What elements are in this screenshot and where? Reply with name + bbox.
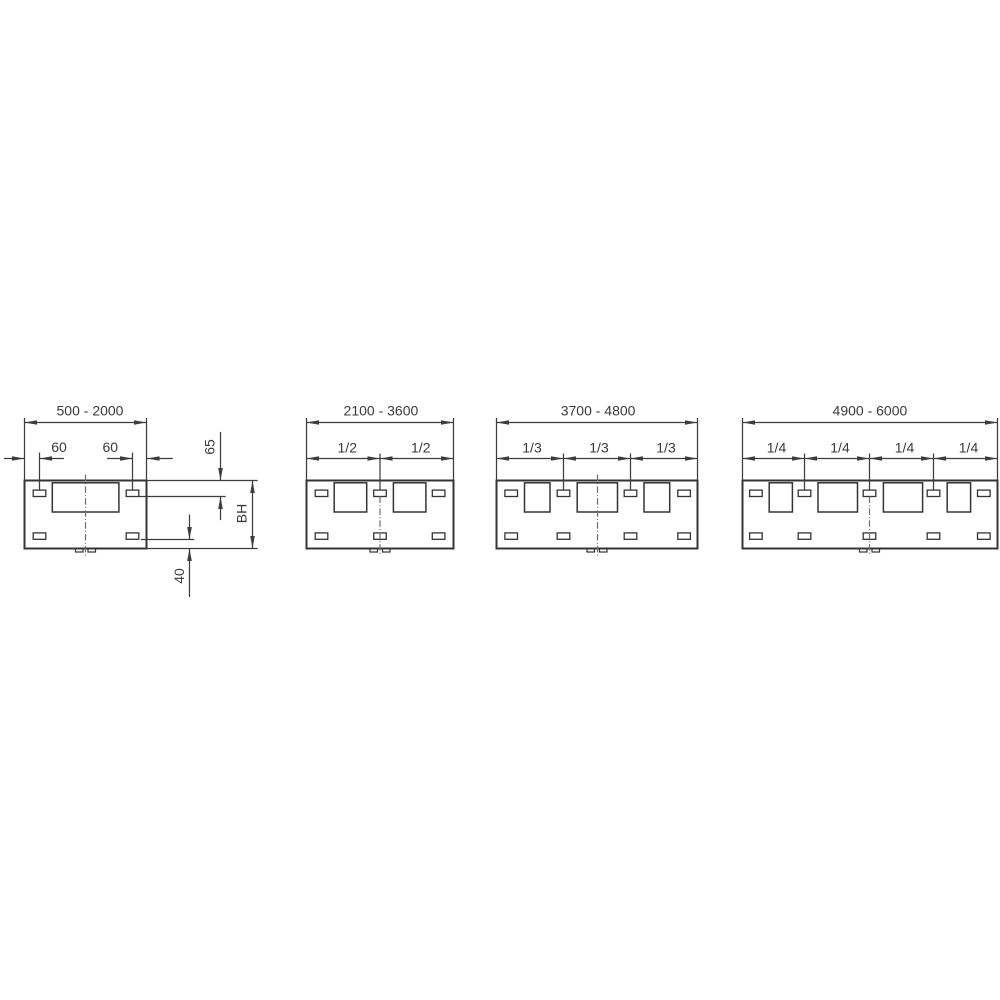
svg-text:1/4: 1/4: [830, 439, 850, 455]
svg-text:1/4: 1/4: [767, 439, 787, 455]
svg-text:1/3: 1/3: [522, 439, 542, 455]
svg-text:2100 - 3600: 2100 - 3600: [344, 403, 419, 419]
svg-text:60: 60: [103, 439, 119, 455]
svg-text:1/3: 1/3: [589, 439, 609, 455]
svg-text:1/2: 1/2: [338, 439, 358, 455]
svg-text:500 - 2000: 500 - 2000: [57, 403, 124, 419]
svg-text:1/4: 1/4: [895, 439, 915, 455]
svg-text:BH: BH: [233, 504, 249, 523]
svg-text:1/2: 1/2: [411, 439, 431, 455]
svg-text:65: 65: [201, 439, 217, 455]
svg-text:4900 - 6000: 4900 - 6000: [833, 403, 908, 419]
svg-text:1/4: 1/4: [959, 439, 979, 455]
svg-text:40: 40: [171, 568, 187, 584]
svg-text:1/3: 1/3: [656, 439, 676, 455]
svg-text:3700 - 4800: 3700 - 4800: [561, 403, 636, 419]
svg-text:60: 60: [51, 439, 67, 455]
